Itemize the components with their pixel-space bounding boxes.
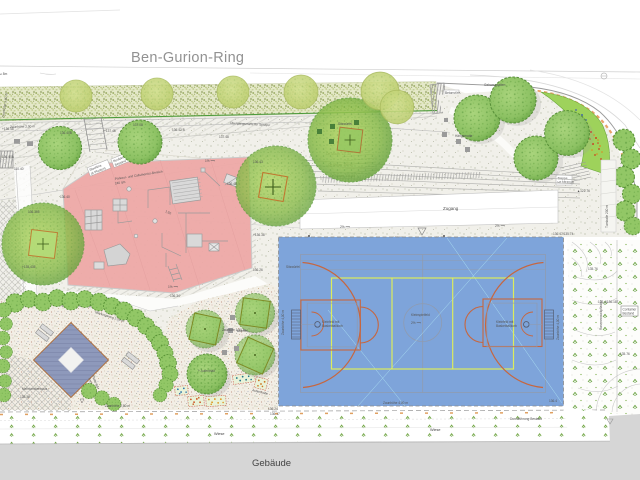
svg-text:Ben-Gurion-Ring: Ben-Gurion-Ring bbox=[131, 50, 244, 66]
svg-text:Wiese: Wiese bbox=[430, 428, 441, 432]
svg-text:136.4: 136.4 bbox=[549, 399, 557, 403]
svg-text:136.4/136.187: 136.4/136.187 bbox=[598, 300, 619, 304]
svg-text:1% ⟶: 1% ⟶ bbox=[205, 159, 215, 163]
svg-text:2% ⟶: 2% ⟶ bbox=[340, 225, 350, 229]
svg-text:136.40: 136.40 bbox=[60, 195, 70, 199]
svg-text:2% ⟶: 2% ⟶ bbox=[495, 224, 505, 228]
svg-text:Sitzwürfel: Sitzwürfel bbox=[286, 265, 300, 269]
svg-text:135.76: 135.76 bbox=[620, 352, 630, 356]
svg-text:+136.38: +136.38 bbox=[253, 233, 265, 237]
svg-text:Durchführung Bestand: Durchführung Bestand bbox=[510, 417, 542, 421]
svg-text:Zaunhöhe 2,80 m: Zaunhöhe 2,80 m bbox=[105, 404, 130, 408]
svg-text:137.08: 137.08 bbox=[133, 123, 143, 127]
svg-text:136.26: 136.26 bbox=[253, 268, 263, 272]
svg-text:Turnhalle 200 m: Turnhalle 200 m bbox=[605, 205, 609, 228]
svg-text:⌀ 8m: ⌀ 8m bbox=[0, 72, 8, 76]
svg-text:1% ⟶: 1% ⟶ bbox=[168, 285, 178, 289]
svg-text:▲122.76: ▲122.76 bbox=[577, 189, 590, 193]
svg-text:Gehwegplatten: Gehwegplatten bbox=[484, 83, 506, 87]
svg-text:+137.48: +137.48 bbox=[104, 129, 116, 133]
svg-text:+ Aufenthalt: + Aufenthalt bbox=[198, 369, 215, 373]
svg-text:Wiese: Wiese bbox=[214, 432, 225, 436]
svg-text:136.43 B: 136.43 B bbox=[172, 128, 185, 132]
svg-text:Zauntüre 1,00 m: Zauntüre 1,00 m bbox=[222, 328, 246, 332]
svg-text:Zaunhöhe 2,00 m: Zaunhöhe 2,00 m bbox=[10, 124, 35, 129]
svg-text:135.36: 135.36 bbox=[20, 395, 30, 399]
svg-text:Basketballkorb: Basketballkorb bbox=[496, 324, 517, 328]
svg-text:136.40A: 136.40A bbox=[2, 155, 15, 159]
svg-text:136.40B: 136.40B bbox=[60, 131, 72, 135]
svg-text:Basketballkorb: Basketballkorb bbox=[322, 324, 343, 328]
svg-text:Zaunhöhe 4,00 m: Zaunhöhe 4,00 m bbox=[556, 315, 560, 340]
svg-text:137.48: 137.48 bbox=[219, 135, 229, 139]
svg-text:136.24: 136.24 bbox=[268, 407, 278, 411]
svg-text:135.76: 135.76 bbox=[588, 267, 598, 271]
svg-text:136.34: 136.34 bbox=[170, 294, 180, 298]
svg-text:Kleinspielfeld: Kleinspielfeld bbox=[411, 313, 430, 317]
svg-text:Zaunhöhe 4,00 m: Zaunhöhe 4,00 m bbox=[383, 401, 408, 405]
svg-text:136.43: 136.43 bbox=[253, 160, 263, 164]
svg-text:136.395: 136.395 bbox=[28, 210, 40, 214]
svg-text:Hängematte: Hängematte bbox=[455, 134, 473, 138]
svg-text:+135.435: +135.435 bbox=[22, 265, 36, 269]
svg-text:136.17: 136.17 bbox=[270, 412, 280, 416]
svg-text:Sitzwürfel: Sitzwürfel bbox=[338, 122, 352, 126]
svg-text:Mehrfamilienhaus: Mehrfamilienhaus bbox=[22, 387, 48, 391]
svg-text:Bestand: Bestand bbox=[623, 312, 635, 316]
svg-text:Zugang: Zugang bbox=[443, 206, 459, 211]
svg-text:136.48: 136.48 bbox=[227, 182, 237, 186]
svg-text:+136.48: +136.48 bbox=[2, 127, 14, 131]
svg-text:Gebäude: Gebäude bbox=[252, 458, 291, 469]
svg-text:110.40: 110.40 bbox=[14, 167, 24, 171]
svg-text:Zaunhöhe 4,00 m: Zaunhöhe 4,00 m bbox=[281, 310, 285, 335]
svg-text:2% ⟶: 2% ⟶ bbox=[411, 321, 421, 325]
svg-text:136.47/135.74: 136.47/135.74 bbox=[553, 232, 574, 236]
